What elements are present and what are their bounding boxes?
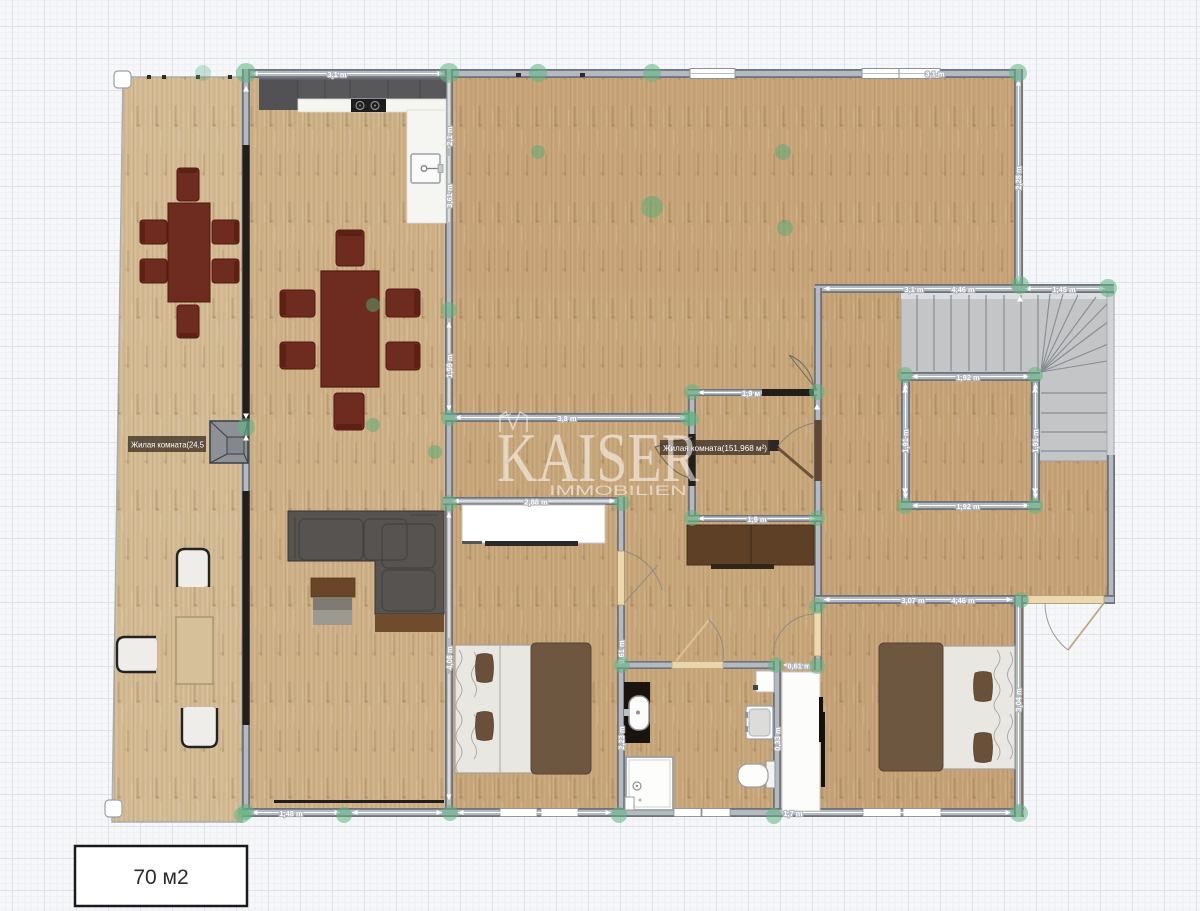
svg-text:2,28 m: 2,28 m	[1014, 166, 1023, 190]
svg-text:4,46 m: 4,46 m	[951, 285, 975, 294]
svg-text:3,61 m: 3,61 m	[445, 184, 454, 208]
svg-text:3,1 m: 3,1 m	[904, 285, 924, 294]
svg-text:1,9 m: 1,9 m	[747, 515, 767, 524]
svg-text:Жилая комната(24,5: Жилая комната(24,5	[131, 440, 204, 450]
svg-text:3,1 m: 3,1 m	[925, 70, 945, 79]
svg-text:0,61 m: 0,61 m	[787, 662, 811, 671]
svg-text:1,91 m: 1,91 m	[1031, 429, 1040, 453]
svg-text:1,92 m: 1,92 m	[956, 502, 980, 511]
svg-text:0,33 m: 0,33 m	[773, 727, 782, 751]
svg-text:2,23 m: 2,23 m	[617, 726, 626, 750]
svg-text:1,59 m: 1,59 m	[445, 354, 454, 378]
svg-text:2,88 m: 2,88 m	[524, 498, 548, 507]
svg-text:1,91 m: 1,91 m	[901, 429, 910, 453]
svg-text:1,92 m: 1,92 m	[956, 373, 980, 382]
svg-text:1,7 m: 1,7 m	[783, 809, 803, 818]
svg-text:3,07 m: 3,07 m	[901, 596, 925, 605]
svg-text:70 м2: 70 м2	[133, 866, 188, 889]
svg-text:3,1 m: 3,1 m	[327, 70, 347, 79]
svg-text:4,08 m: 4,08 m	[445, 646, 454, 670]
svg-text:1,45 m: 1,45 m	[1052, 285, 1076, 294]
svg-text:2,1 m: 2,1 m	[445, 126, 454, 146]
svg-text:1,48 m: 1,48 m	[279, 809, 303, 818]
svg-text:4,46 m: 4,46 m	[951, 596, 975, 605]
svg-text:1,9 м: 1,9 м	[742, 389, 761, 398]
svg-text:IMMOBILIEN: IMMOBILIEN	[549, 483, 687, 498]
svg-text:3,04 m: 3,04 m	[1014, 688, 1023, 712]
